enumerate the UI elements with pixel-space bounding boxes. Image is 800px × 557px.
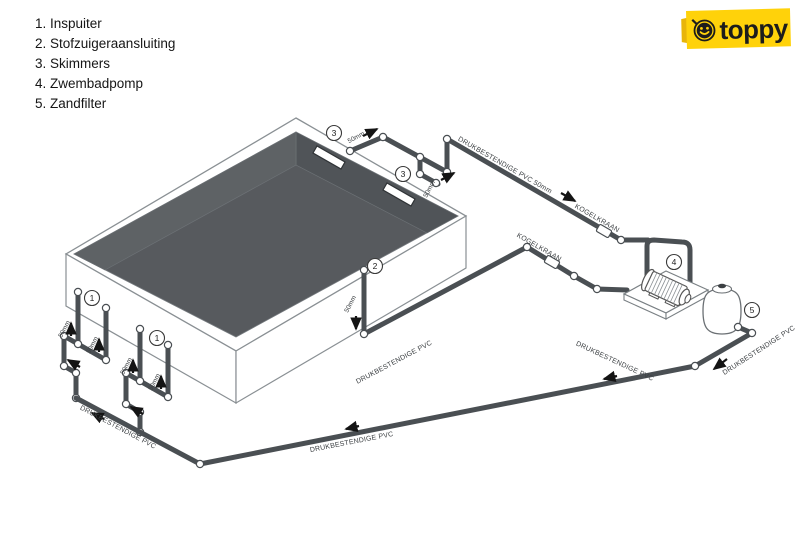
- pipe-size-label: 50mm: [57, 320, 72, 339]
- callout-skimmer: 3: [396, 167, 411, 182]
- pool-plumbing-diagram: 1. Inspuiter 2. Stofzuigeraansluiting 3.…: [0, 0, 800, 557]
- pipe-joint: [196, 460, 203, 467]
- pipe-joint: [570, 272, 577, 279]
- pipe-joint: [691, 362, 698, 369]
- callout-zwembadpomp: 4: [667, 255, 682, 270]
- toppy-logo: toppy: [681, 8, 791, 49]
- pipe-joint: [60, 362, 67, 369]
- pipe-joint: [617, 236, 624, 243]
- pipe-size-label: 50mm: [119, 357, 134, 376]
- pipe-joint: [346, 147, 353, 154]
- valves: [544, 224, 612, 269]
- pipe-joint: [164, 341, 171, 348]
- callout-zandfilter: 5: [745, 303, 760, 318]
- flow-arrow: [363, 129, 377, 136]
- pipe-joint: [748, 329, 755, 336]
- pipe-size-label: 50mm: [422, 180, 437, 199]
- flow-arrow: [68, 360, 80, 367]
- pipe-joint: [379, 133, 386, 140]
- logo-wordmark: toppy: [719, 13, 789, 45]
- flow-arrow: [604, 376, 617, 379]
- callout-inspuiter: 1: [150, 331, 165, 346]
- pipe-joint: [136, 325, 143, 332]
- pipe-joint: [164, 393, 171, 400]
- pipe-joint: [74, 288, 81, 295]
- filter-knob: [718, 284, 726, 289]
- pipe-type-label: DRUKBESTENDIGE PVC 50mm: [457, 136, 553, 196]
- pipe-joint: [74, 340, 81, 347]
- svg-text:5: 5: [750, 305, 755, 315]
- flow-arrow: [346, 426, 359, 429]
- callout-inspuiter: 1: [85, 291, 100, 306]
- pool-pump: [624, 268, 708, 319]
- flow-arrow: [561, 193, 575, 201]
- pipe-type-label: DRUKBESTENDIGE PVC: [355, 340, 433, 386]
- pipe-joint: [102, 356, 109, 363]
- callout-skimmer: 3: [327, 126, 342, 141]
- pipe-joint: [122, 400, 129, 407]
- pipe-size-label: 50mm: [85, 336, 100, 355]
- svg-text:1: 1: [90, 293, 95, 303]
- callout-stofzuigeraansluiting: 2: [368, 259, 383, 274]
- pipe-joint: [443, 135, 450, 142]
- svg-text:3: 3: [332, 128, 337, 138]
- svg-text:4: 4: [672, 257, 677, 267]
- pipe-joint: [136, 377, 143, 384]
- pipe-joint: [593, 285, 600, 292]
- pipe-joint: [360, 330, 367, 337]
- pipe-joint: [416, 170, 423, 177]
- svg-text:1: 1: [155, 333, 160, 343]
- flow-arrow: [714, 359, 727, 369]
- diagram-svg: 50mm 50mm 50mm 50mm 50mm 50mm 50mm DRUKB…: [0, 0, 800, 557]
- pipe-size-label: 50mm: [147, 373, 162, 392]
- svg-text:2: 2: [373, 261, 378, 271]
- pipe-joint: [72, 369, 79, 376]
- pipe-joint: [360, 266, 367, 273]
- pipe-joint: [416, 153, 423, 160]
- pipe-joint: [102, 304, 109, 311]
- svg-text:3: 3: [401, 169, 406, 179]
- pipe-type-label: DRUKBESTENDIGE PVC: [79, 405, 157, 451]
- pipe-joint: [734, 323, 741, 330]
